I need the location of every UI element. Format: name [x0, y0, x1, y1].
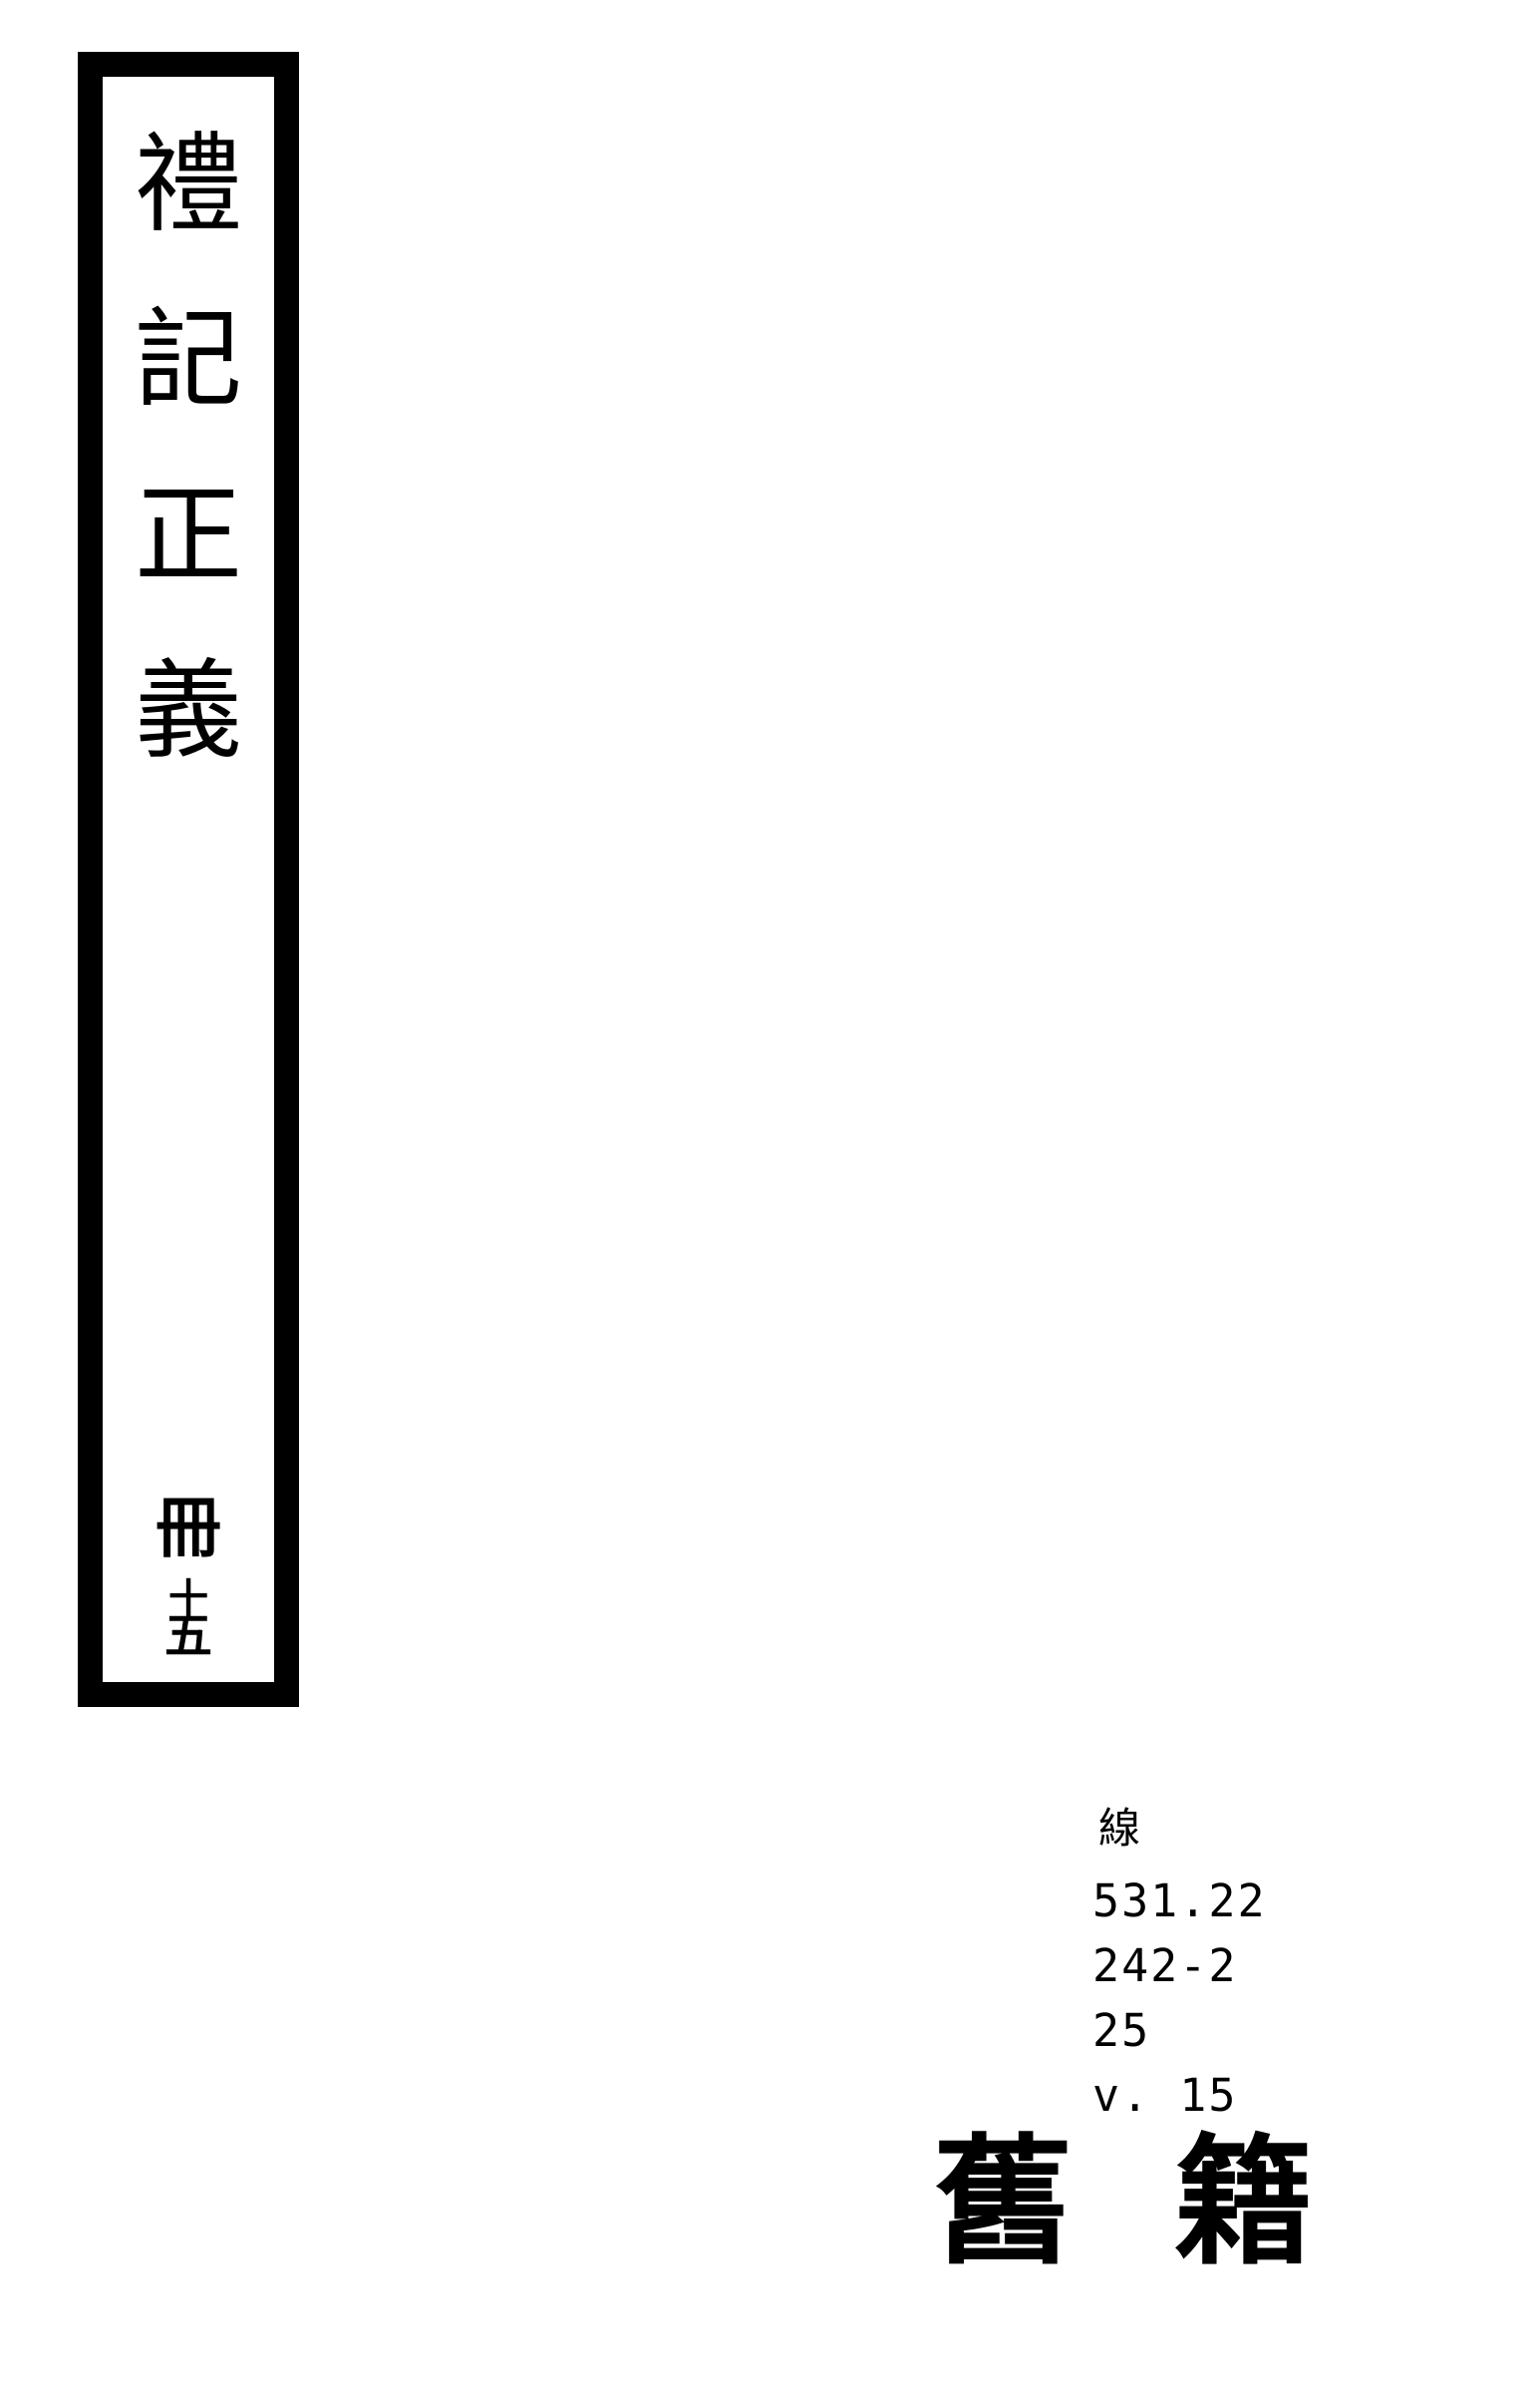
call-number-line-4: v. 15	[1092, 2063, 1267, 2128]
volume-number: 冊 十 五	[103, 1497, 274, 1660]
spine-label-box: 禮 記 正 義 冊 十 五	[78, 52, 299, 1707]
stamp-char-jiu: 舊	[933, 2130, 1073, 2279]
call-number-line-1: 531.22	[1092, 1869, 1267, 1933]
title-char-li: 禮	[135, 131, 242, 242]
call-number-class-char: 線	[1098, 1807, 1267, 1853]
title-char-ji: 記	[135, 306, 242, 418]
call-number-line-2: 242-2	[1092, 1933, 1267, 1998]
call-number-line-3: 25	[1092, 1998, 1267, 2063]
stamp-char-ji: 籍	[1174, 2130, 1314, 2279]
scanned-book-spine-page: 禮 記 正 義 冊 十 五 線 531.22 242-2 25 v. 15 舊 …	[0, 0, 1540, 2383]
library-call-number: 線 531.22 242-2 25 v. 15	[1092, 1807, 1267, 2128]
title-char-yi: 義	[135, 657, 242, 769]
title-char-zheng: 正	[135, 482, 242, 593]
volume-five-char: 五	[164, 1614, 212, 1660]
old-books-stamp: 舊 籍	[933, 2130, 1314, 2279]
book-title-vertical: 禮 記 正 義	[103, 131, 274, 769]
volume-fifteen-ligature: 十 五	[164, 1584, 212, 1660]
volume-booklet-char: 冊	[155, 1497, 221, 1562]
